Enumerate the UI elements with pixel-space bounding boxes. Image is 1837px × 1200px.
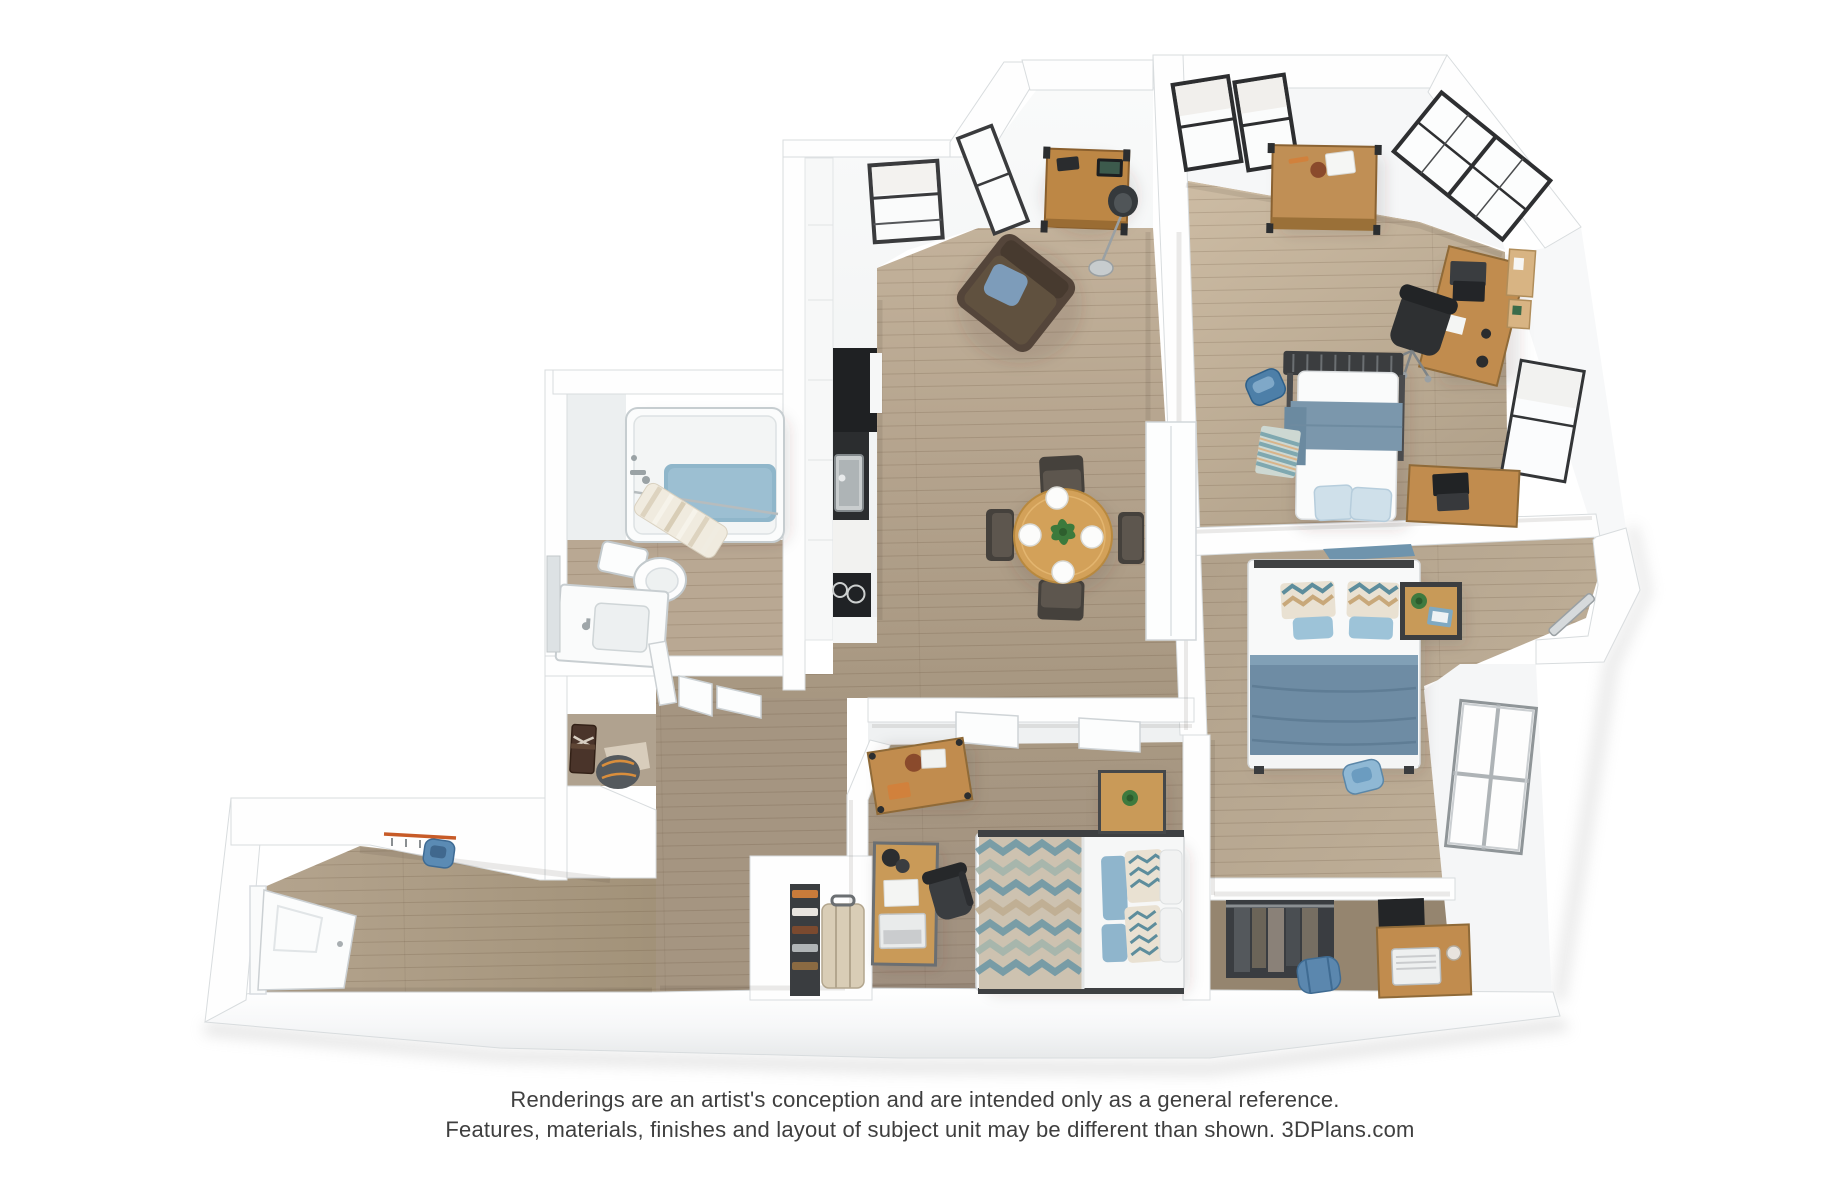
svg-text:Features, materials, finishes: Features, materials, finishes and layout… [445, 1117, 1414, 1142]
svg-text:Renderings are an artist's con: Renderings are an artist's conception an… [510, 1087, 1339, 1112]
